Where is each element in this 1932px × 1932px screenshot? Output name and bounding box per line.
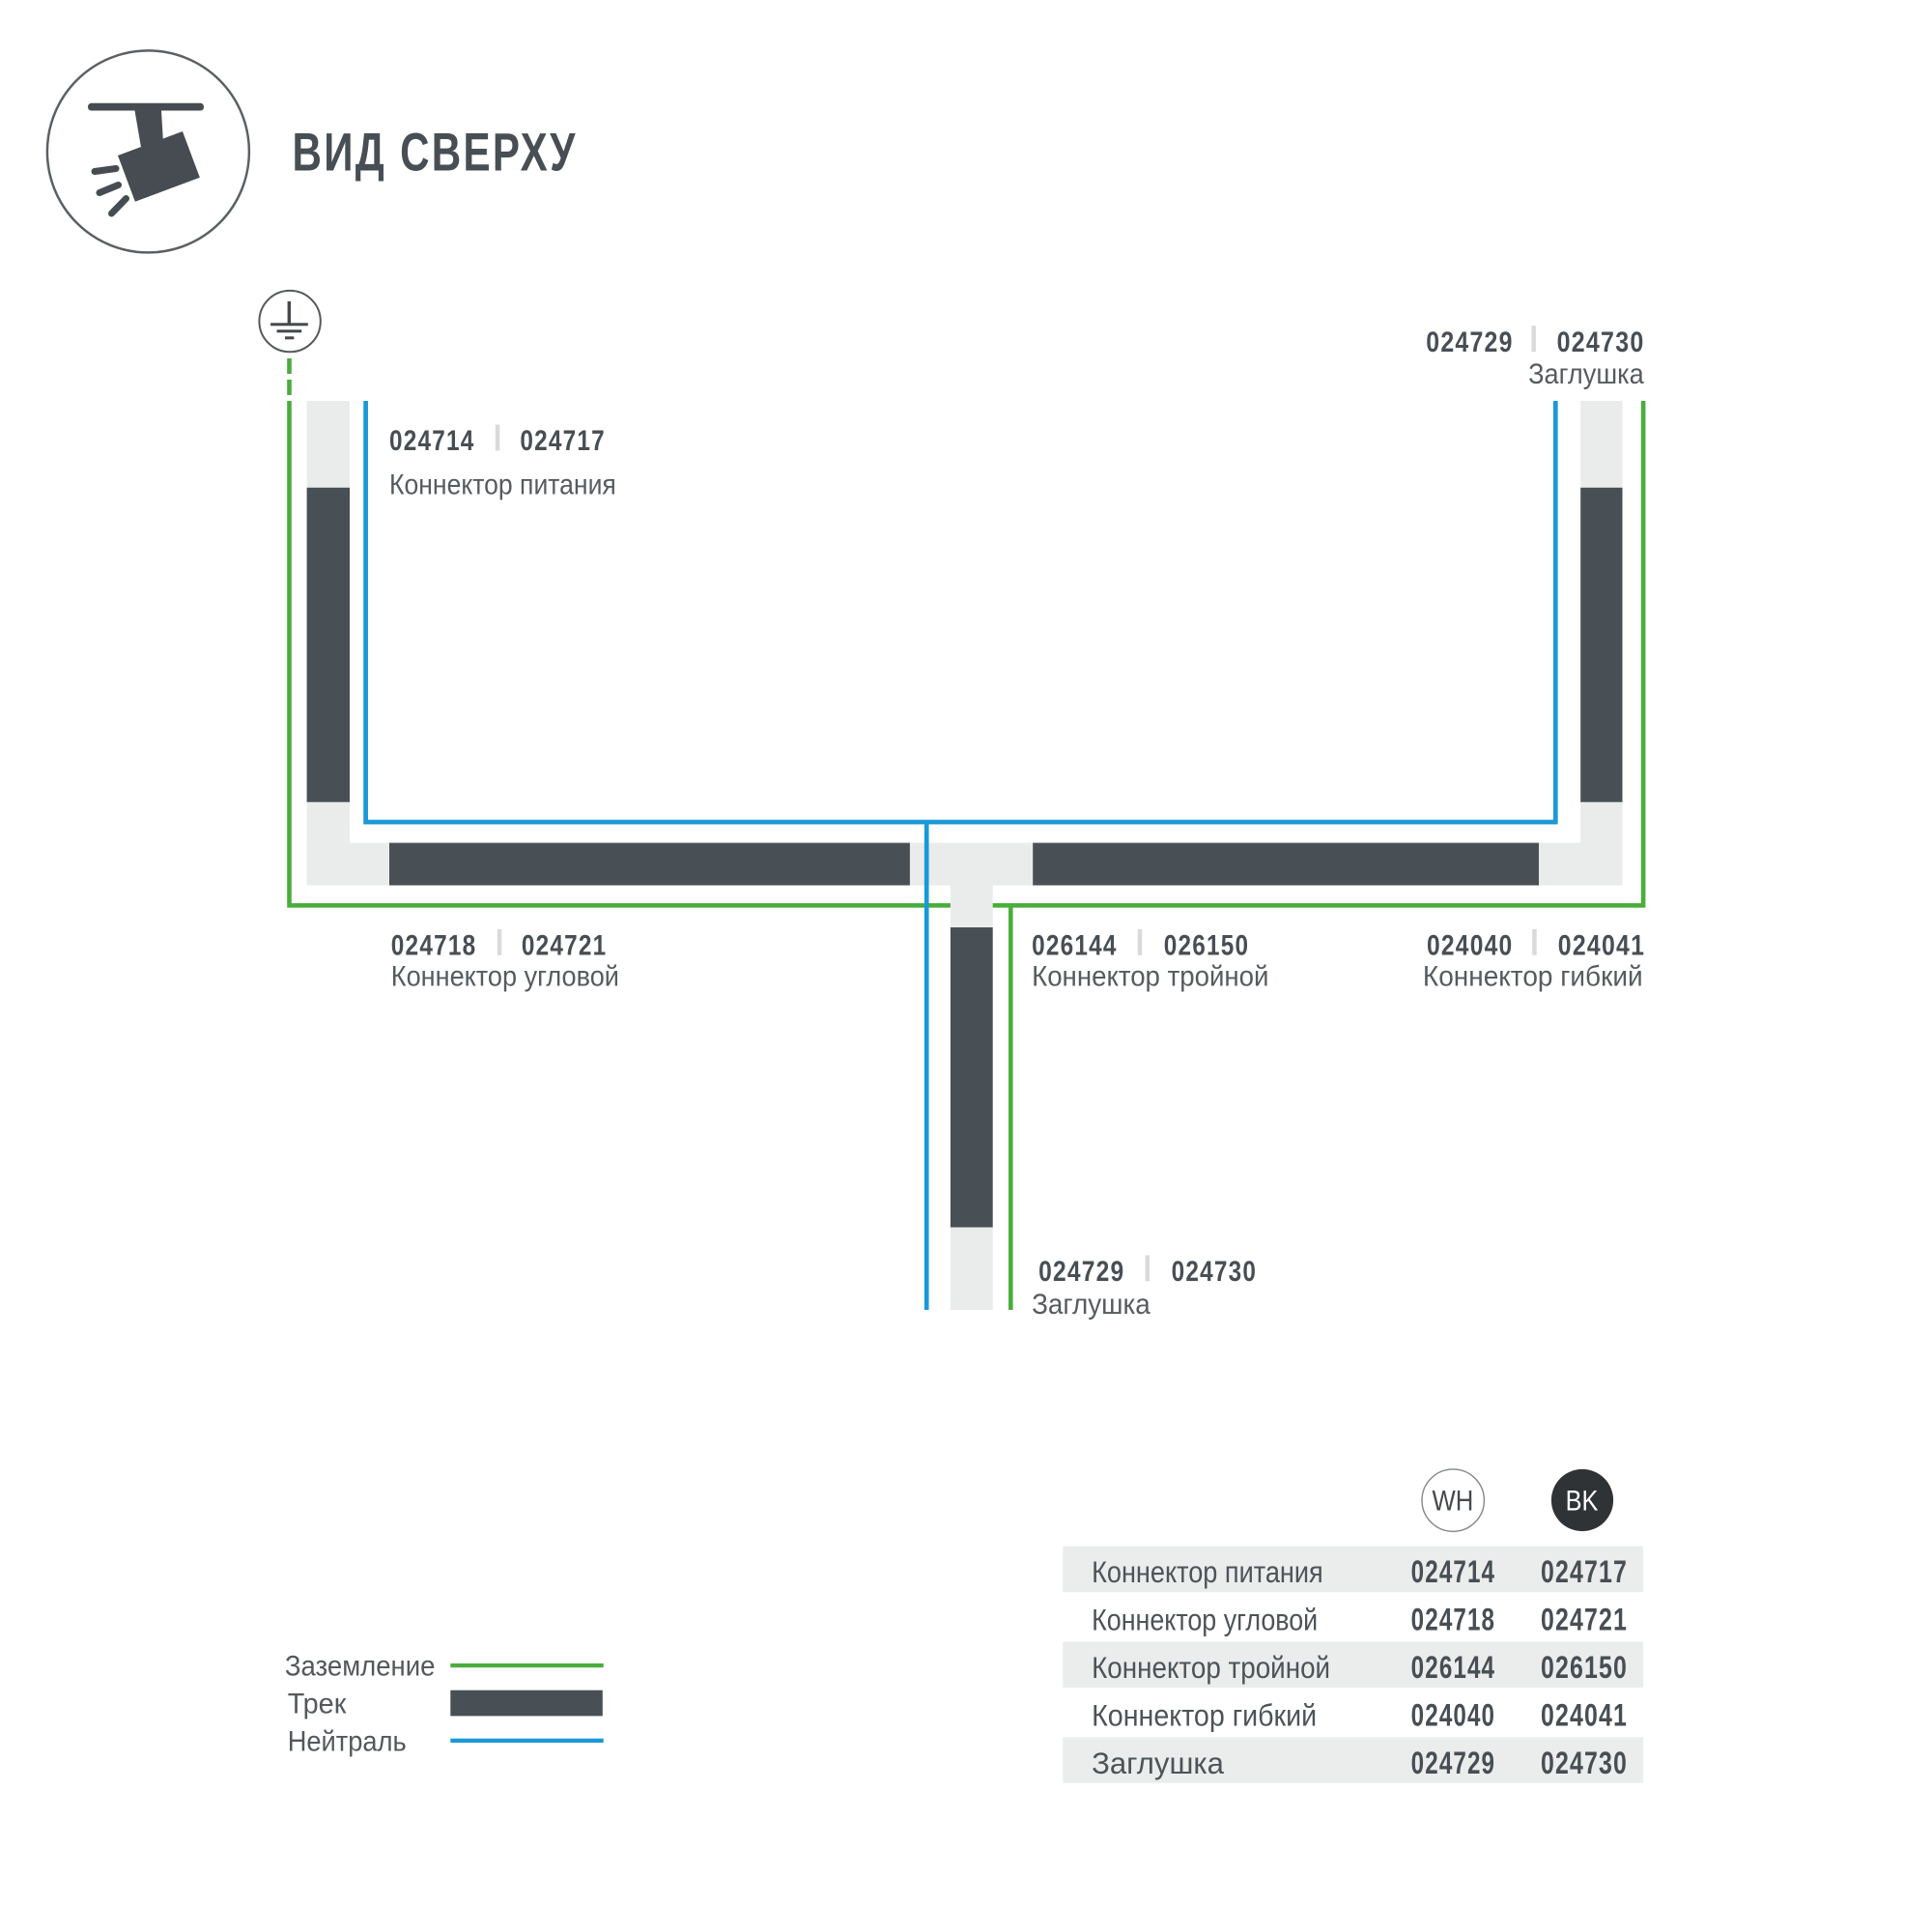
- svg-text:024714: 024714: [389, 423, 474, 456]
- svg-text:024730: 024730: [1541, 1747, 1628, 1781]
- svg-text:Коннектор угловой: Коннектор угловой: [1092, 1604, 1318, 1638]
- svg-text:Коннектор гибкий: Коннектор гибкий: [1423, 961, 1643, 993]
- svg-text:024729: 024729: [1411, 1746, 1495, 1780]
- svg-text:026150: 026150: [1541, 1651, 1628, 1686]
- svg-text:Коннектор угловой: Коннектор угловой: [391, 960, 619, 993]
- svg-text:024718: 024718: [1411, 1603, 1495, 1637]
- svg-text:024717: 024717: [1541, 1555, 1628, 1590]
- svg-text:024730: 024730: [1557, 326, 1645, 358]
- svg-text:Коннектор тройной: Коннектор тройной: [1032, 961, 1268, 993]
- svg-text:Заземление: Заземление: [285, 1650, 436, 1682]
- svg-text:024041: 024041: [1558, 928, 1645, 961]
- svg-text:Коннектор гибкий: Коннектор гибкий: [1092, 1699, 1317, 1733]
- svg-text:Трек: Трек: [288, 1688, 347, 1720]
- svg-text:Заглушка: Заглушка: [1528, 358, 1644, 391]
- svg-text:024041: 024041: [1541, 1698, 1628, 1733]
- svg-text:Заглушка: Заглушка: [1092, 1747, 1224, 1780]
- svg-text:Коннектор питания: Коннектор питания: [1092, 1555, 1323, 1589]
- svg-text:024721: 024721: [522, 928, 607, 961]
- svg-text:026144: 026144: [1411, 1651, 1495, 1686]
- svg-text:026144: 026144: [1032, 928, 1117, 961]
- svg-text:024718: 024718: [391, 928, 477, 961]
- svg-text:024729: 024729: [1038, 1255, 1124, 1288]
- svg-text:026150: 026150: [1164, 928, 1249, 961]
- svg-text:024714: 024714: [1411, 1555, 1495, 1590]
- svg-text:Заглушка: Заглушка: [1032, 1289, 1151, 1321]
- svg-text:ВИД СВЕРХУ: ВИД СВЕРХУ: [293, 123, 578, 183]
- svg-text:024721: 024721: [1541, 1604, 1628, 1638]
- svg-text:BK: BK: [1566, 1484, 1599, 1516]
- svg-text:Коннектор тройной: Коннектор тройной: [1092, 1651, 1330, 1685]
- svg-text:Коннектор питания: Коннектор питания: [389, 469, 616, 501]
- svg-text:024729: 024729: [1426, 326, 1513, 358]
- svg-text:024040: 024040: [1427, 928, 1513, 961]
- svg-text:024730: 024730: [1172, 1254, 1257, 1287]
- svg-text:024040: 024040: [1411, 1698, 1495, 1733]
- svg-text:024717: 024717: [520, 423, 605, 456]
- svg-text:WH: WH: [1432, 1485, 1473, 1517]
- svg-text:Нейтраль: Нейтраль: [288, 1726, 407, 1758]
